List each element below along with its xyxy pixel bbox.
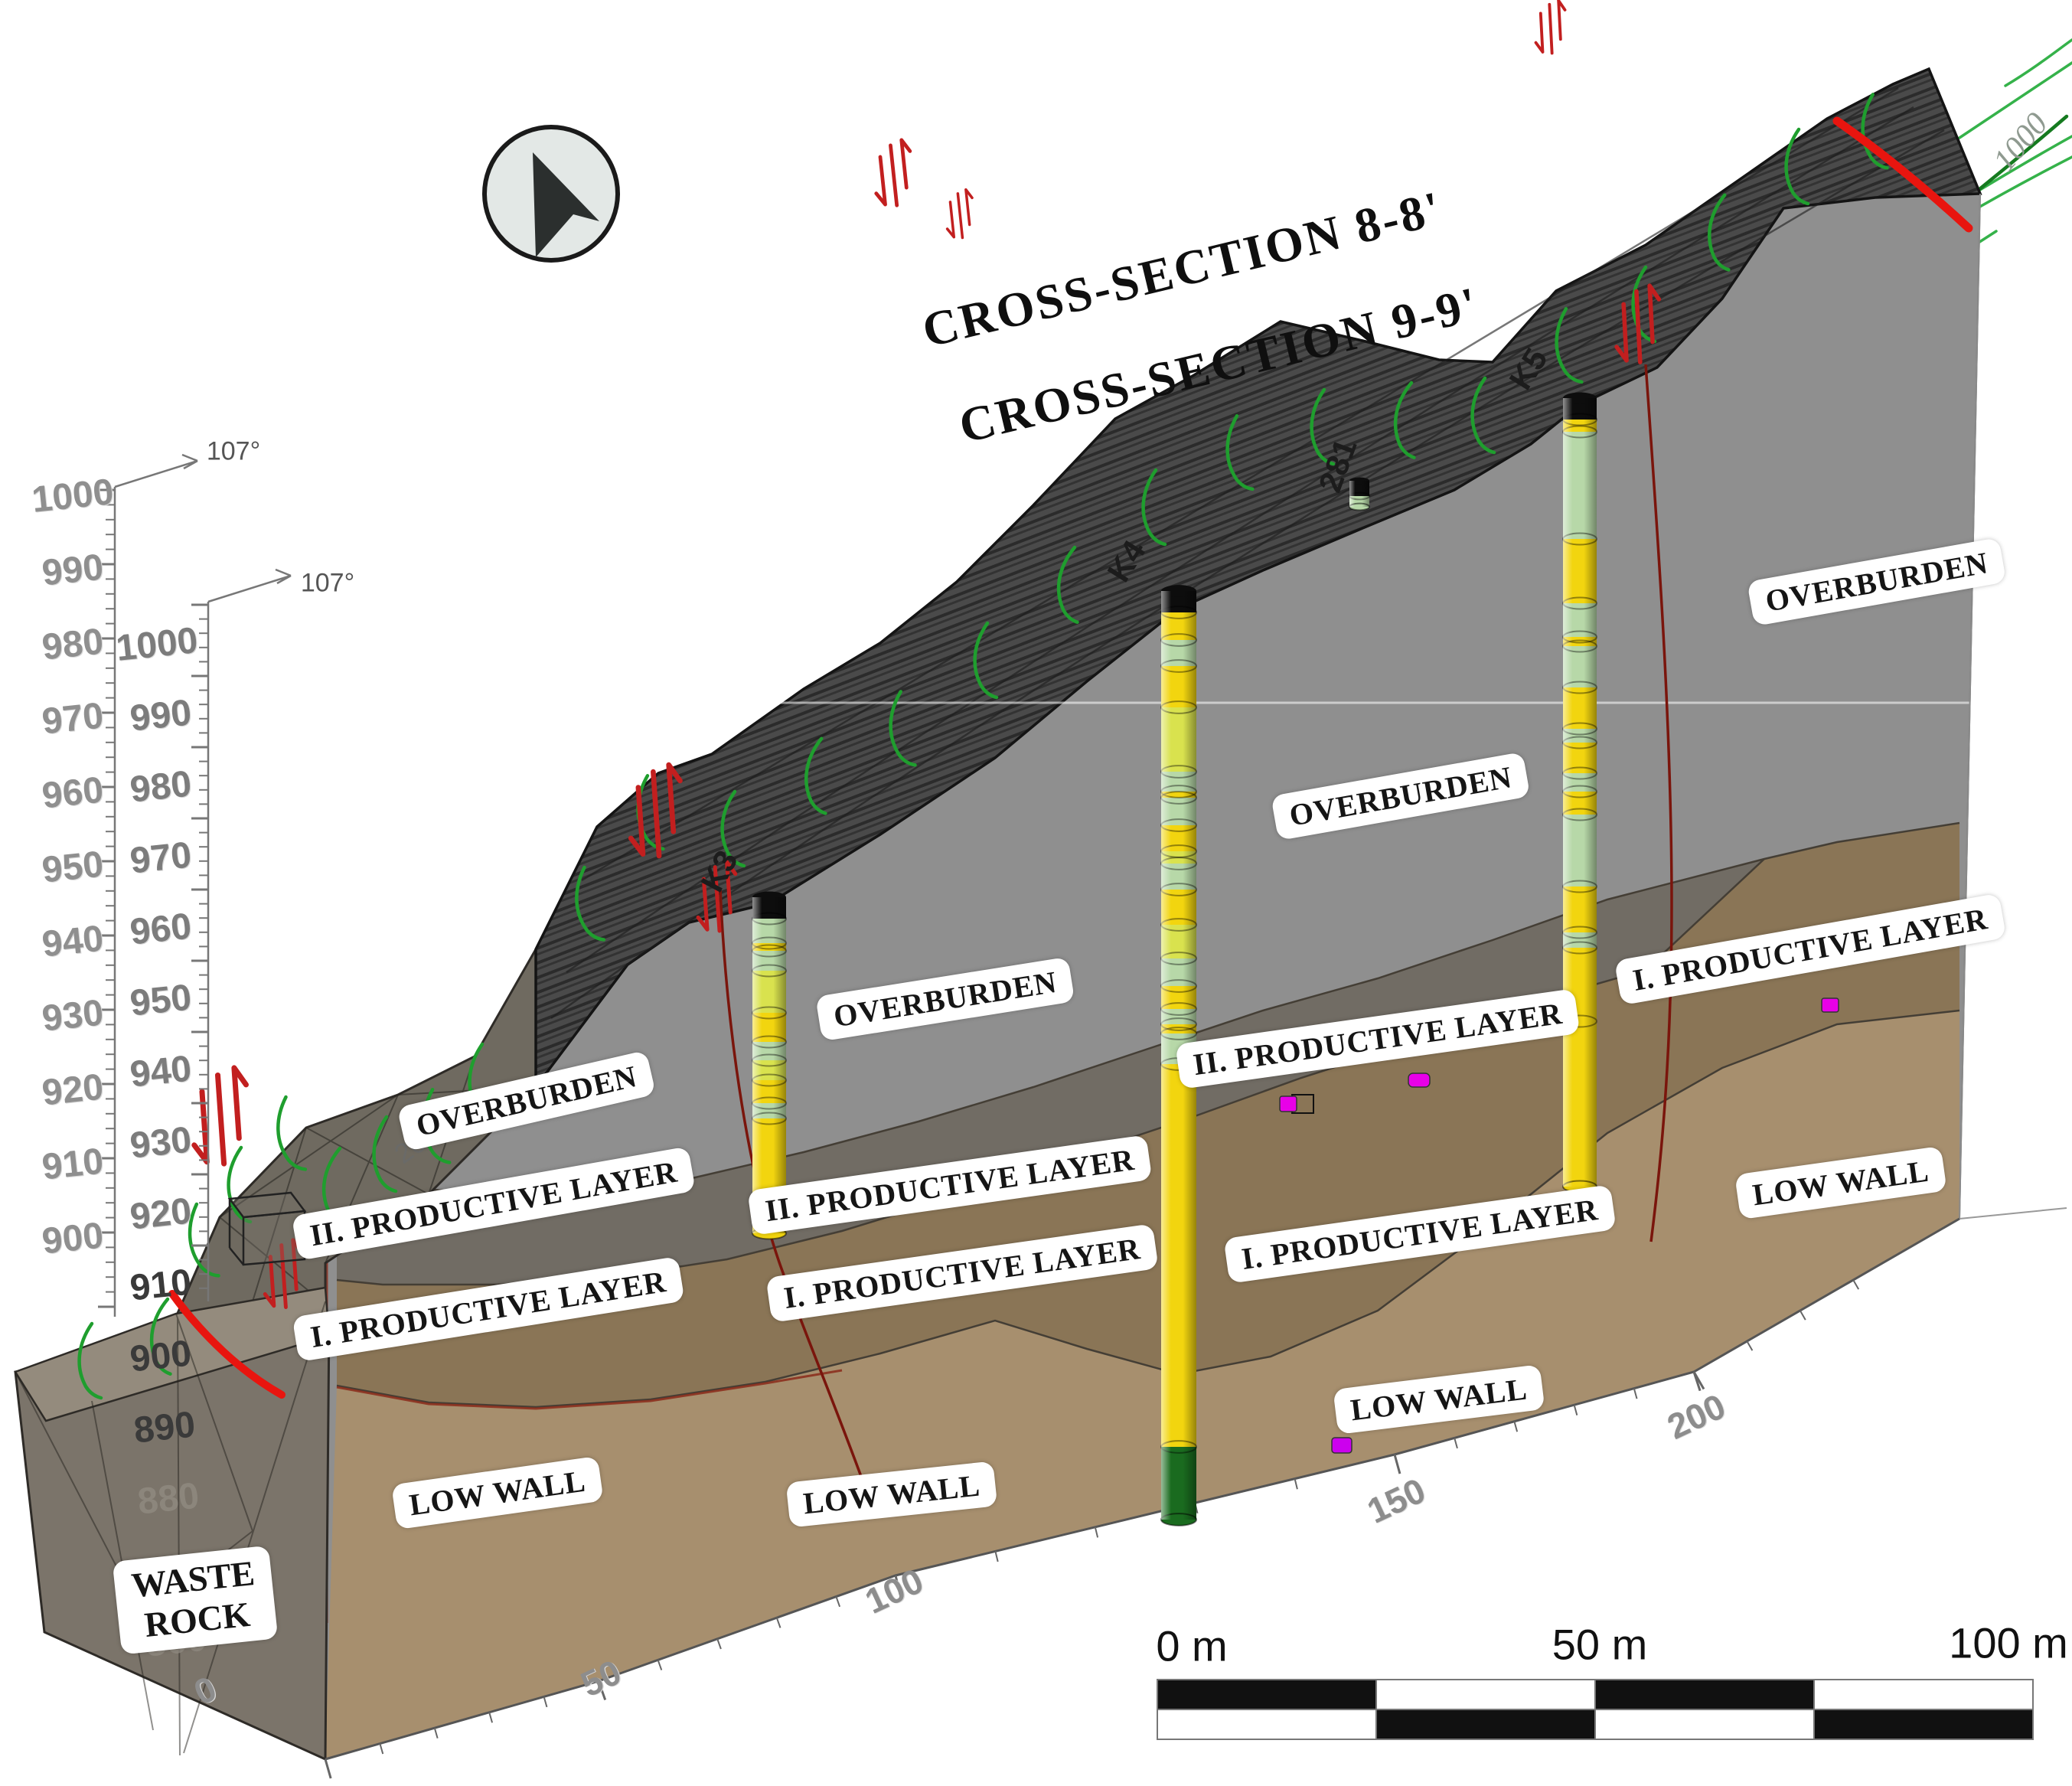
borehole-281 — [1349, 478, 1369, 511]
scale-bar — [1157, 1680, 2033, 1739]
elevation-axis-left — [115, 455, 197, 1317]
borehole-K4 — [1161, 585, 1196, 1526]
bottom-right-axis-ext — [1959, 1208, 2067, 1219]
cross-section-scene — [0, 0, 2072, 1786]
borehole-K3 — [752, 892, 786, 1239]
borehole-K5 — [1563, 393, 1597, 1193]
figure-canvas: CROSS-SECTION 8-8'CROSS-SECTION 9-9'107°… — [0, 0, 2072, 1786]
north-arrow-icon — [485, 127, 618, 260]
